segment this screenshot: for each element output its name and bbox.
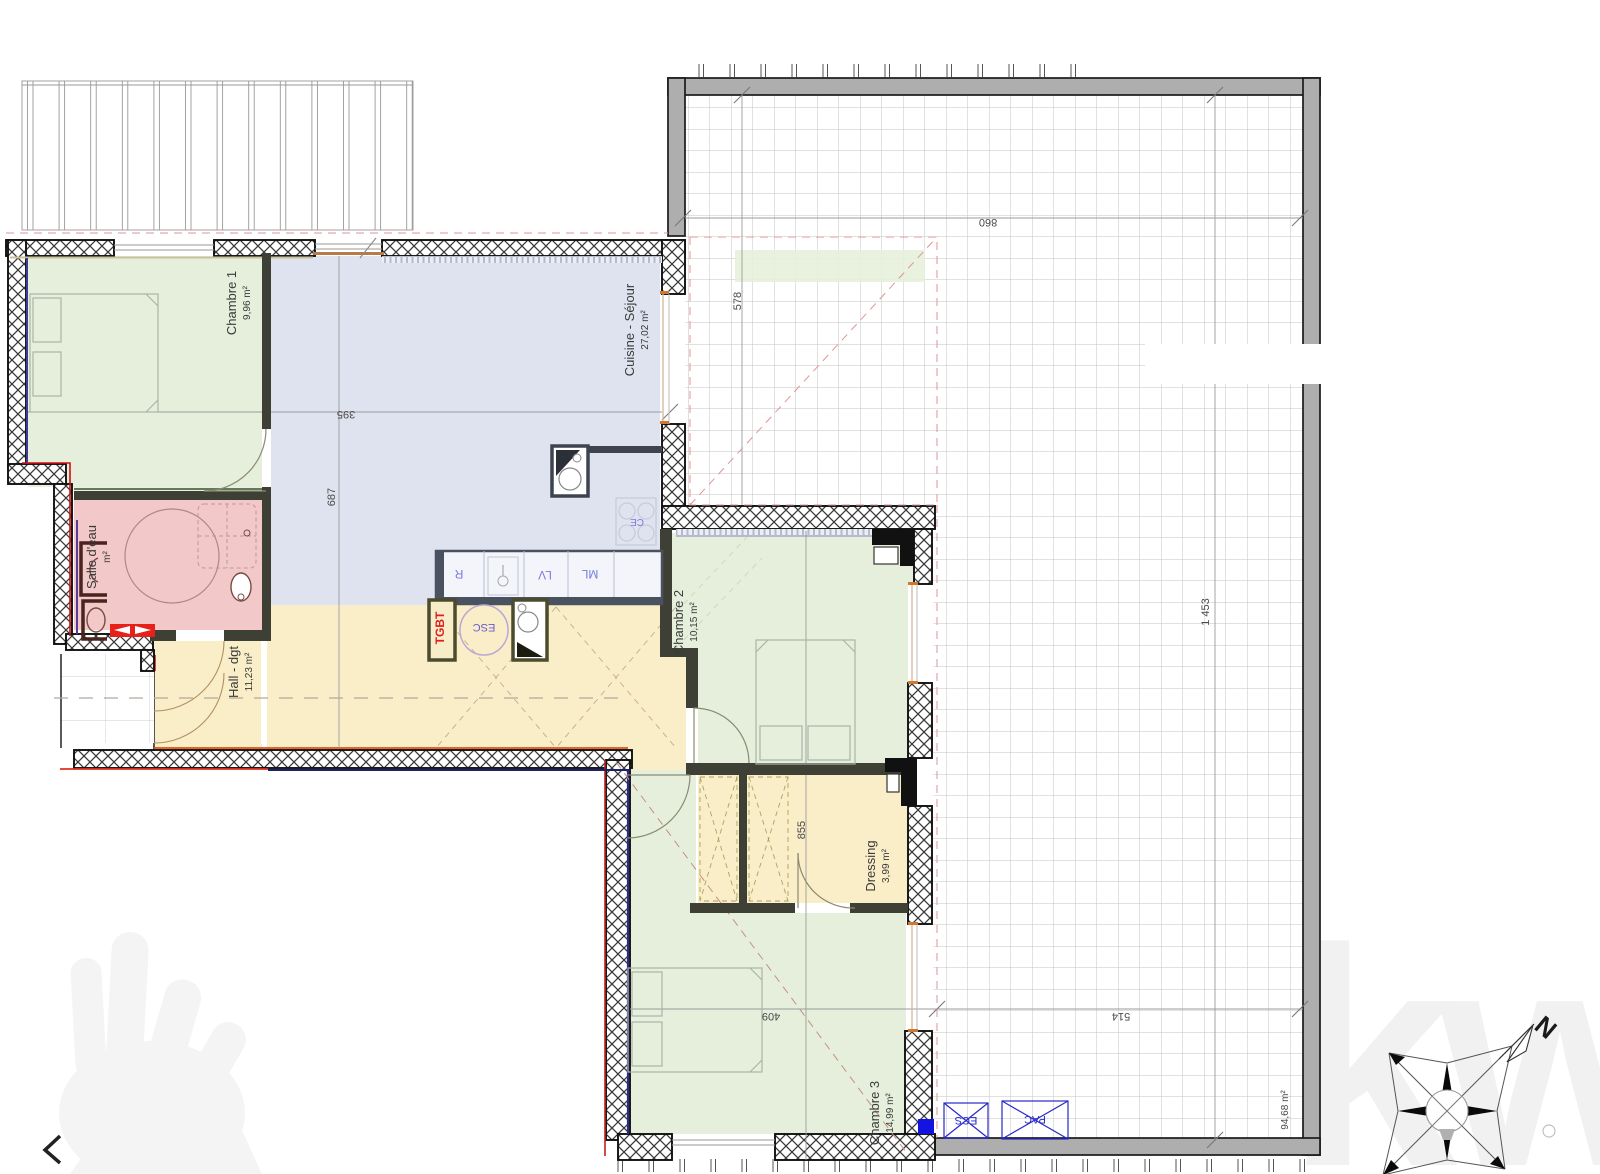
- svg-text:855: 855: [796, 821, 808, 839]
- svg-text:LV: LV: [538, 568, 552, 582]
- svg-text:514: 514: [1112, 1010, 1130, 1022]
- svg-text:PAC: PAC: [1024, 1113, 1046, 1125]
- svg-text:Chambre 1: Chambre 1: [224, 271, 239, 335]
- svg-text:R: R: [454, 567, 463, 581]
- svg-text:14,99 m²: 14,99 m²: [885, 1093, 896, 1133]
- svg-text:11,23 m²: 11,23 m²: [244, 652, 255, 691]
- svg-text:Dressing: Dressing: [863, 840, 878, 891]
- svg-text:ESC: ESC: [473, 621, 496, 633]
- svg-text:Chambre 2: Chambre 2: [671, 590, 686, 654]
- svg-text:27,02 m²: 27,02 m²: [640, 310, 651, 350]
- svg-text:860: 860: [979, 216, 997, 228]
- svg-text:CE: CE: [630, 516, 644, 527]
- svg-text:3,99 m²: 3,99 m²: [881, 848, 892, 883]
- svg-text:Salle d'eau: Salle d'eau: [84, 525, 99, 589]
- svg-text:94,68 m²: 94,68 m²: [1280, 1090, 1291, 1130]
- svg-text:10,15 m²: 10,15 m²: [689, 602, 700, 642]
- svg-text:1 453: 1 453: [1200, 598, 1212, 626]
- svg-text:687: 687: [326, 488, 338, 506]
- svg-text:409: 409: [762, 1010, 780, 1022]
- svg-text:395: 395: [337, 408, 355, 420]
- svg-text:9,96 m²: 9,96 m²: [242, 285, 253, 320]
- svg-text:m²: m²: [102, 551, 113, 563]
- svg-text:Chambre 3: Chambre 3: [867, 1081, 882, 1145]
- svg-text:Cuisine - Séjour: Cuisine - Séjour: [622, 283, 637, 376]
- svg-text:Hall - dgt: Hall - dgt: [226, 646, 241, 698]
- svg-text:TGBT: TGBT: [433, 611, 447, 644]
- svg-text:578: 578: [732, 292, 744, 310]
- svg-text:ECS: ECS: [955, 1114, 978, 1126]
- svg-text:ML: ML: [581, 567, 598, 581]
